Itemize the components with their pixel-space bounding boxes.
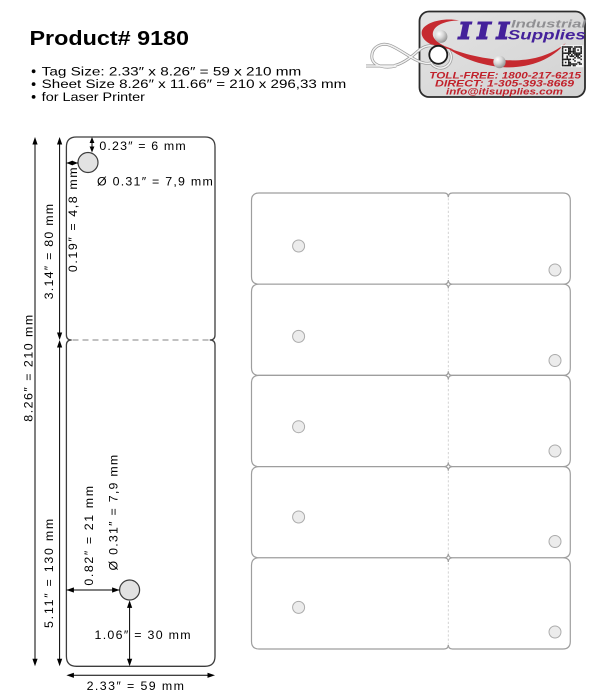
svg-text:2.33″ = 59 mm: 2.33″ = 59 mm — [87, 679, 186, 693]
svg-text:3.14″ = 80 mm: 3.14″ = 80 mm — [42, 203, 56, 300]
svg-text:0.19″ = 4,8 mm: 0.19″ = 4,8 mm — [66, 166, 80, 272]
svg-text:8.26″ = 210 mm: 8.26″ = 210 mm — [22, 313, 36, 421]
svg-text:0.23″ = 6 mm: 0.23″ = 6 mm — [99, 139, 186, 153]
svg-text:Supplies: Supplies — [508, 28, 586, 43]
svg-text:1.06″ = 30 mm: 1.06″ = 30 mm — [95, 628, 192, 642]
svg-text:Ø 0.31″ = 7,9 mm: Ø 0.31″ = 7,9 mm — [97, 175, 214, 189]
svg-text:Ø 0.31″ = 7,9 mm: Ø 0.31″ = 7,9 mm — [107, 453, 121, 570]
svg-text:0.82″ = 21 mm: 0.82″ = 21 mm — [82, 484, 96, 585]
svg-text:info@itisupplies.com: info@itisupplies.com — [446, 86, 563, 97]
svg-text:Product# 9180: Product# 9180 — [30, 27, 190, 50]
svg-text:5.11″ = 130 mm: 5.11″ = 130 mm — [42, 517, 56, 628]
svg-text:for Laser Printer: for Laser Printer — [42, 90, 145, 104]
